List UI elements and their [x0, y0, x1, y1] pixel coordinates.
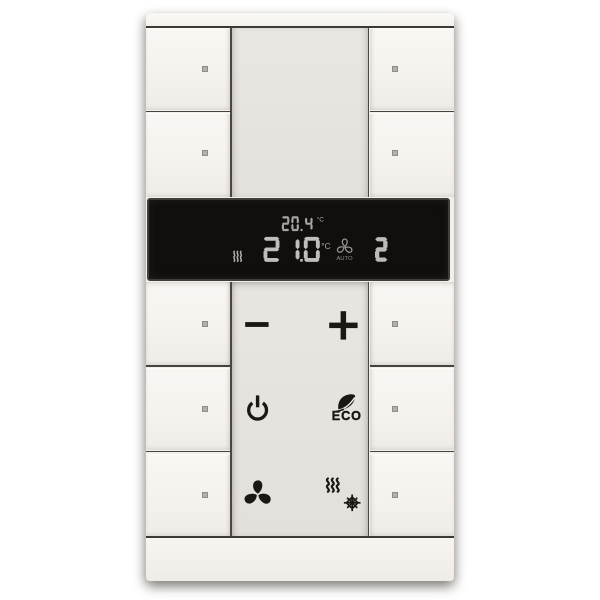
svg-text:°C: °C — [316, 215, 324, 223]
svg-text:°C: °C — [321, 240, 330, 250]
svg-text:AUTO: AUTO — [336, 255, 353, 261]
svg-text:ECO: ECO — [332, 409, 362, 423]
